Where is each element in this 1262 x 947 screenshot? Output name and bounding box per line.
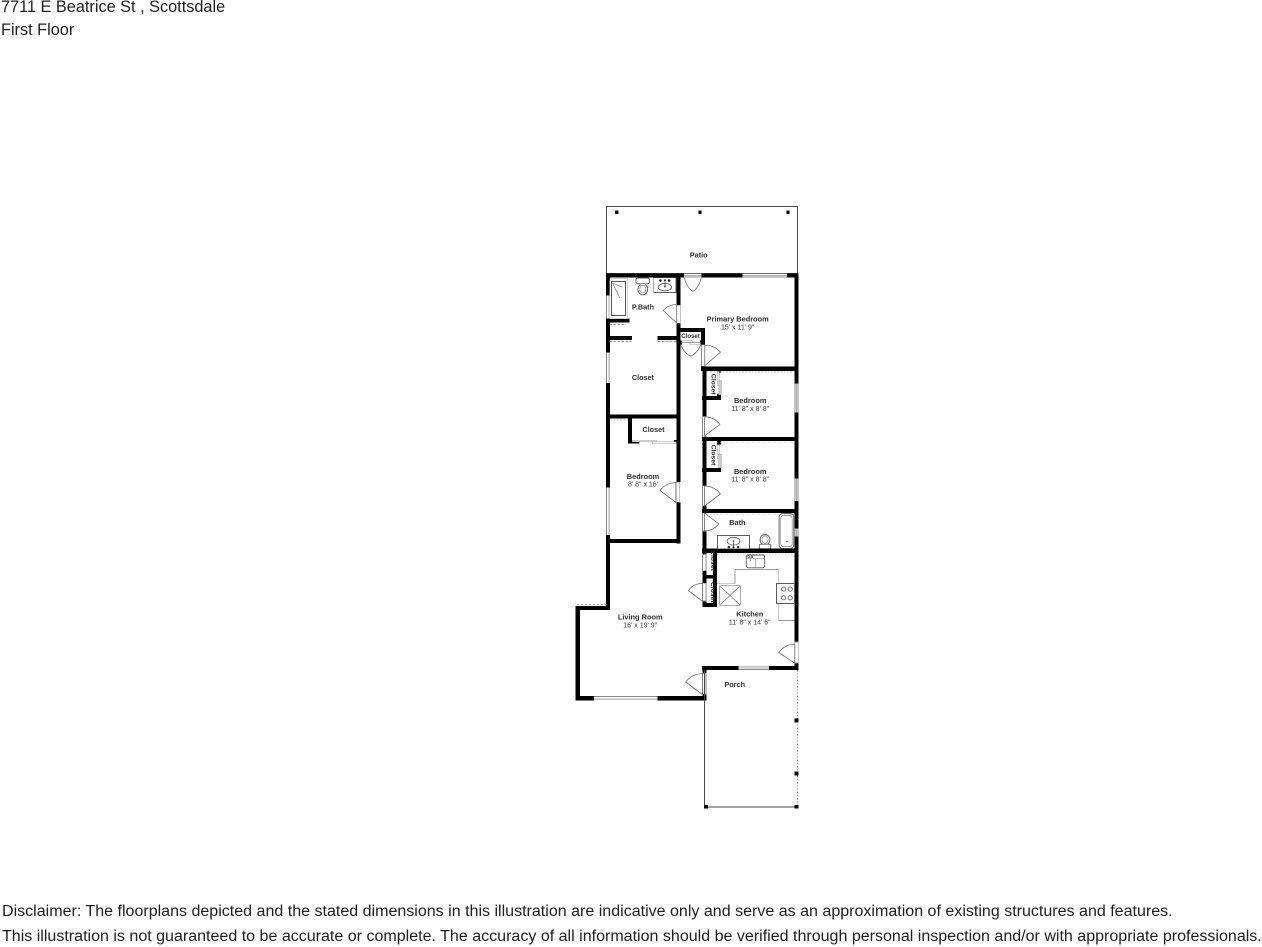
svg-text:P.Bath: P.Bath (632, 302, 654, 311)
svg-text:Closet: Closet (709, 550, 716, 572)
svg-text:Bath: Bath (729, 518, 745, 527)
svg-text:Bedroom: Bedroom (734, 396, 767, 405)
svg-text:11' 8" x 8' 8": 11' 8" x 8' 8" (731, 477, 769, 484)
svg-text:11' 8" x 8' 8": 11' 8" x 8' 8" (731, 406, 769, 413)
svg-text:11' 8" x 14' 6": 11' 8" x 14' 6" (729, 620, 771, 627)
svg-text:15' x 11' 9": 15' x 11' 9" (721, 325, 755, 332)
svg-text:Bedroom: Bedroom (734, 467, 767, 476)
svg-text:Porch: Porch (724, 680, 745, 689)
svg-text:8' 8" x 16': 8' 8" x 16' (628, 482, 658, 489)
svg-text:Closet: Closet (709, 582, 716, 604)
svg-text:Closet: Closet (681, 334, 699, 340)
svg-text:Closet: Closet (710, 445, 717, 467)
svg-text:Bedroom: Bedroom (627, 472, 660, 481)
svg-text:16' x 19' 9": 16' x 19' 9" (623, 623, 657, 630)
svg-text:Patio: Patio (690, 250, 708, 259)
svg-text:Living Room: Living Room (618, 613, 663, 622)
svg-text:Closet: Closet (643, 425, 666, 434)
svg-text:Closet: Closet (632, 373, 655, 382)
svg-text:Kitchen: Kitchen (736, 609, 764, 618)
svg-text:Primary Bedroom: Primary Bedroom (707, 315, 769, 324)
svg-text:Closet: Closet (710, 374, 717, 396)
